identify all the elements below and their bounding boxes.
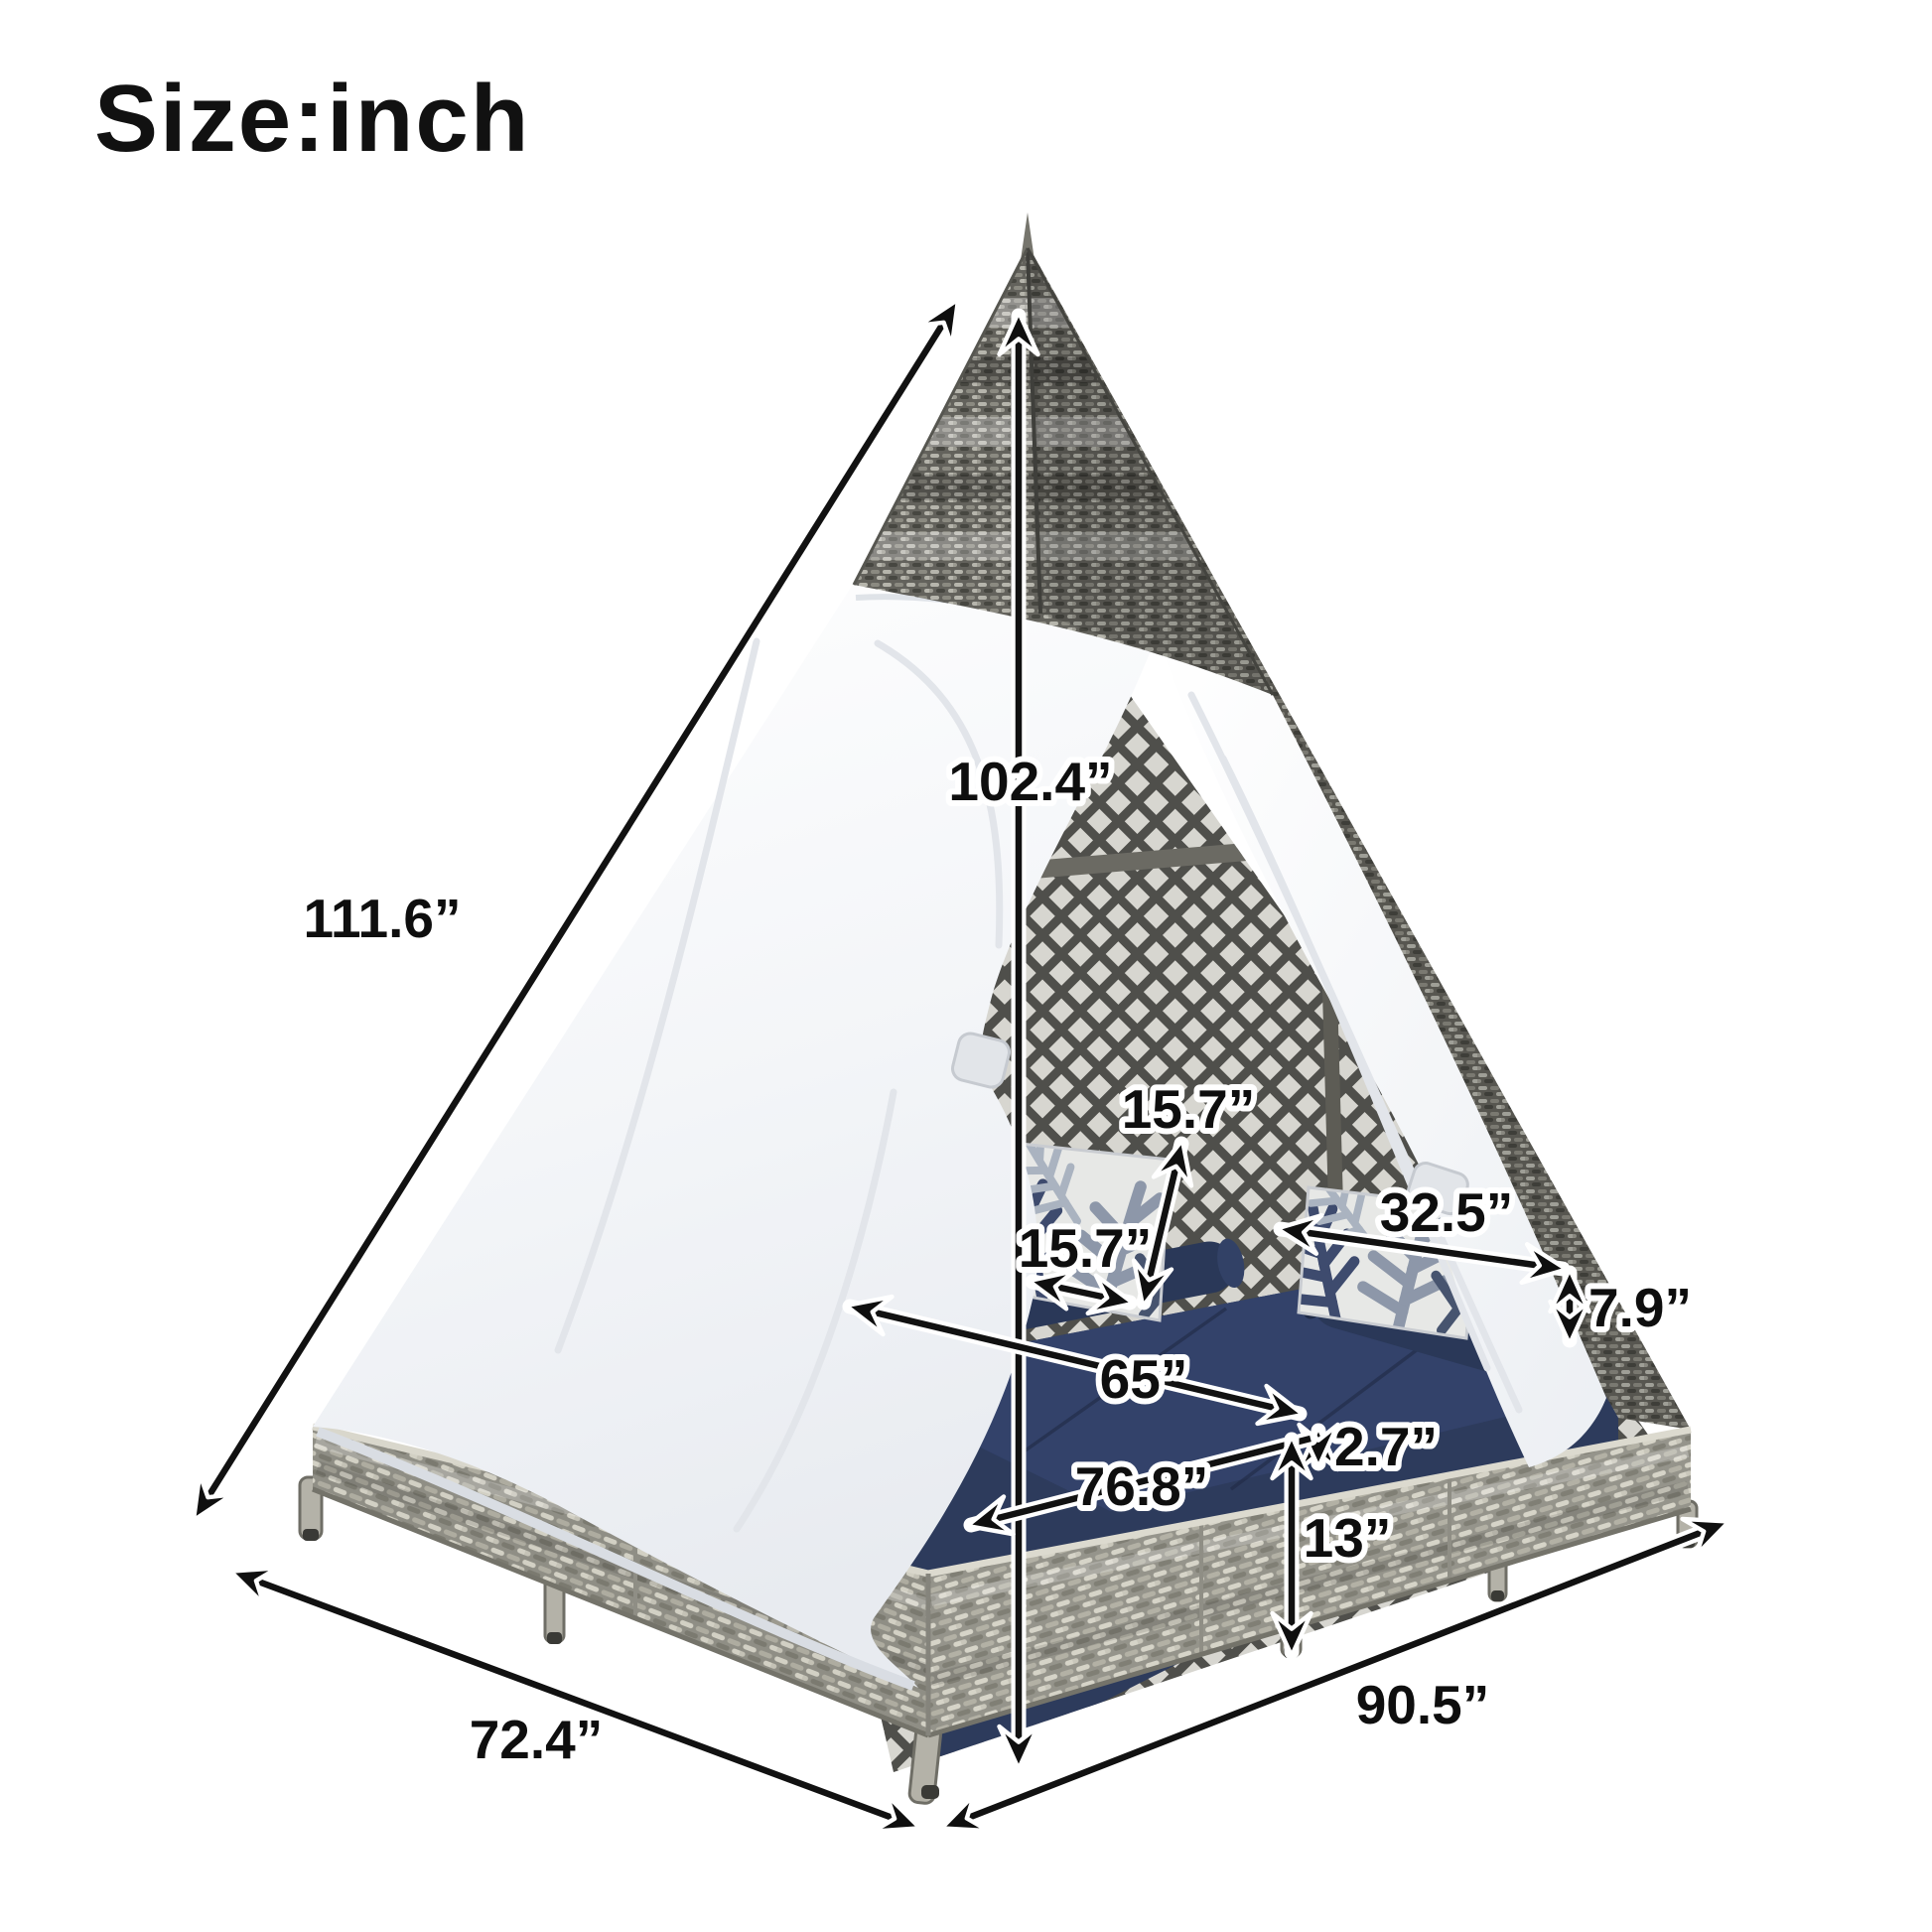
dim-label-back-cushion-length: 32.5” [1380,1181,1514,1243]
dim-label-mattress-length: 65” [1100,1348,1188,1410]
size-diagram-canvas: Size:inch [0,0,1932,1932]
dim-label-pillow-height: 15.7” [1122,1078,1256,1140]
dim-label-peak-height: 102.4” [948,751,1112,812]
dim-label-base-height: 13” [1304,1507,1392,1569]
dim-label-base-side-left: 72.4” [470,1709,604,1770]
dim-label-base-side-front: 90.5” [1356,1674,1490,1735]
dim-label-back-cushion-height: 7.9” [1588,1277,1692,1338]
dim-label-pad-thickness: 2.7” [1334,1416,1438,1477]
dim-label-mattress-depth: 76.8” [1075,1455,1209,1517]
page-title: Size:inch [94,66,530,172]
dim-label-pillow-width: 15.7” [1019,1217,1153,1279]
dim-label-slant-height: 111.6” [303,888,461,949]
product-dimension-diagram: Size:inch [0,0,1932,1932]
curtain-tie-left [950,1031,1012,1089]
